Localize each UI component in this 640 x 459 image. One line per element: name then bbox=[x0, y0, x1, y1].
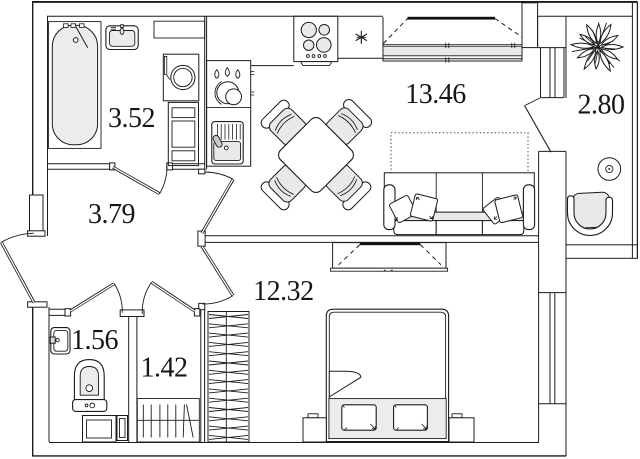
svg-text:3.79: 3.79 bbox=[88, 199, 135, 230]
svg-text:2.80: 2.80 bbox=[578, 90, 625, 121]
svg-text:1.56: 1.56 bbox=[71, 325, 119, 356]
svg-text:12.32: 12.32 bbox=[253, 276, 314, 307]
svg-text:3.52: 3.52 bbox=[108, 103, 155, 134]
svg-text:1.42: 1.42 bbox=[141, 353, 188, 384]
svg-text:13.46: 13.46 bbox=[405, 79, 466, 110]
